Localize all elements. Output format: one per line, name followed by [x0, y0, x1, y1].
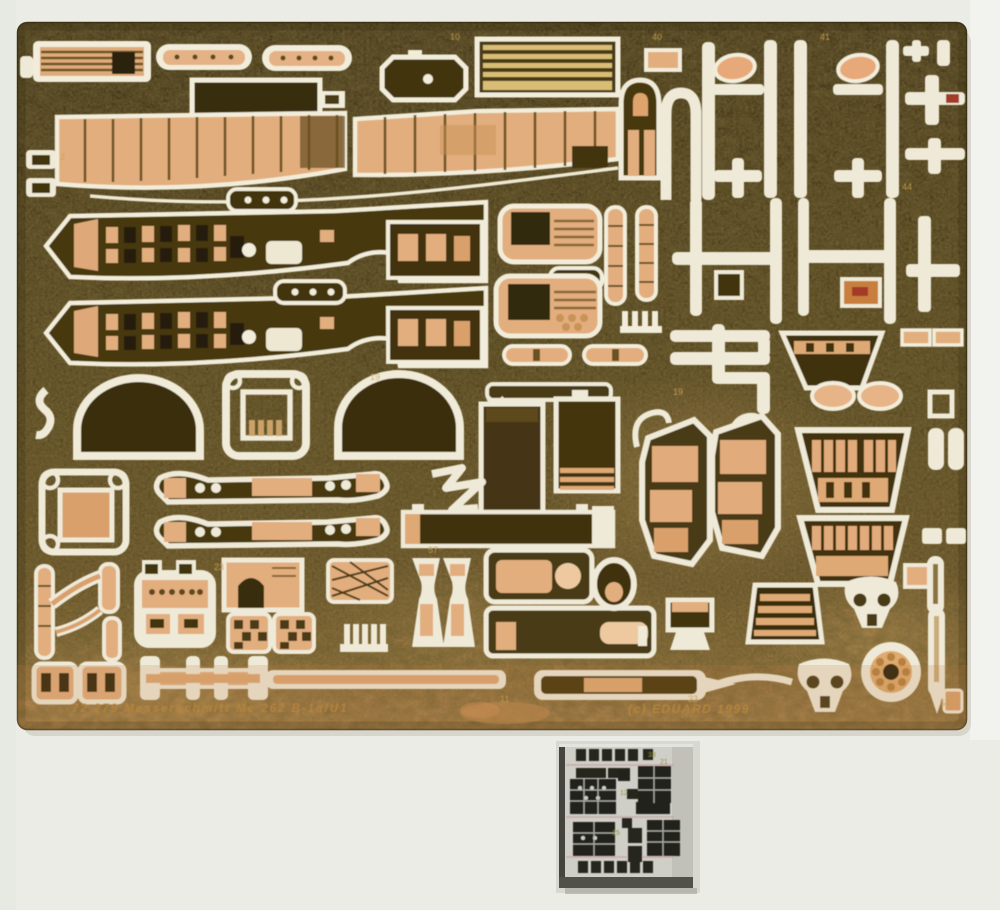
svg-text:57: 57 [428, 545, 438, 555]
svg-text:40: 40 [652, 32, 662, 42]
svg-text:12: 12 [620, 790, 628, 797]
svg-text:44: 44 [902, 182, 912, 192]
svg-text:23: 23 [214, 562, 224, 572]
svg-text:15: 15 [612, 830, 620, 837]
svg-text:10: 10 [450, 32, 460, 42]
svg-text:19: 19 [673, 387, 683, 397]
svg-text:41: 41 [820, 32, 830, 42]
svg-text:19: 19 [370, 372, 380, 382]
svg-text:21: 21 [660, 759, 668, 766]
svg-text:33: 33 [648, 752, 656, 759]
svg-text:2: 2 [60, 152, 65, 162]
